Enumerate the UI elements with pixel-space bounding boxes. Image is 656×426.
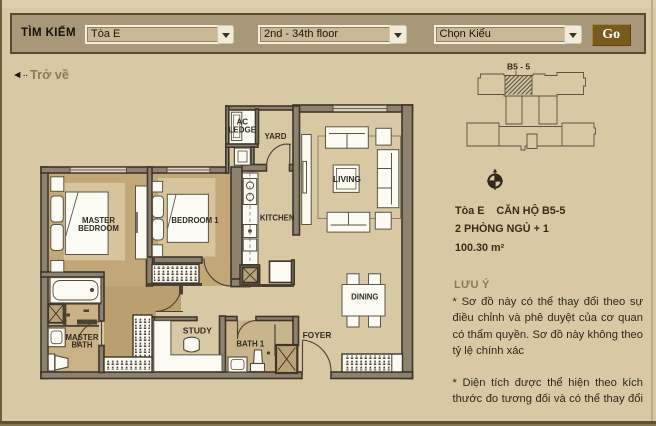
svg-text:YARD: YARD [265, 132, 287, 141]
svg-text:BATH 1: BATH 1 [236, 340, 265, 349]
svg-text:BEDROOM 1: BEDROOM 1 [171, 216, 219, 225]
svg-text:B5 - 5: B5 - 5 [507, 62, 530, 72]
svg-text:LEDGE: LEDGE [229, 126, 257, 135]
svg-text:KITCHEN: KITCHEN [260, 214, 295, 223]
svg-text:BEDROOM: BEDROOM [78, 224, 119, 233]
svg-text:DINING: DINING [351, 293, 378, 302]
svg-text:BATH: BATH [71, 340, 92, 349]
svg-text:LIVING: LIVING [333, 174, 361, 184]
svg-text:FOYER: FOYER [303, 330, 332, 340]
svg-text:STUDY: STUDY [183, 326, 212, 336]
